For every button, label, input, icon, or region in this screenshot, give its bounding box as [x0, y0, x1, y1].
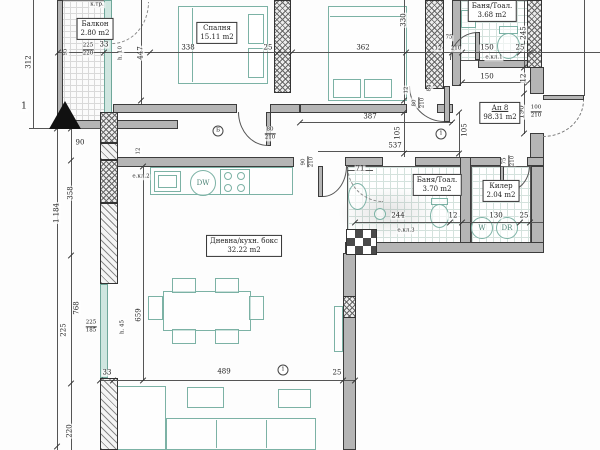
- dim: 1 184: [54, 202, 61, 224]
- entry-door-arc: [543, 100, 584, 137]
- dim-line: [57, 126, 58, 450]
- column: [527, 0, 542, 68]
- bed-fold: [330, 16, 405, 17]
- dim-line: [462, 82, 528, 83]
- wall: [460, 157, 471, 246]
- dim: 25: [263, 45, 274, 52]
- wall-hatched: [100, 143, 118, 160]
- chair: [215, 278, 239, 293]
- dim-line: [100, 380, 355, 381]
- annotation: h. 10: [118, 45, 124, 61]
- column: [343, 296, 356, 318]
- dim: 312: [26, 54, 33, 69]
- wall-hatched: [100, 203, 118, 284]
- dim-pair: 90210: [300, 157, 315, 168]
- dim: 150: [479, 74, 494, 81]
- dryer-label: DR: [502, 224, 513, 232]
- pillow: [333, 79, 361, 98]
- annotation: е.кл.1: [484, 55, 503, 61]
- sofa-cushion-line: [216, 420, 217, 448]
- axis-marker: 1: [278, 365, 289, 376]
- wall: [113, 104, 237, 113]
- room-label-balcony: Балкон2.80 m2: [77, 18, 114, 40]
- dim-pair: 100210: [531, 104, 542, 119]
- radiator: [334, 306, 343, 352]
- wall-hatched: [100, 378, 118, 450]
- washer-label: W: [478, 224, 485, 232]
- side-table: [278, 389, 311, 408]
- dim: 244: [390, 213, 405, 220]
- dishwasher-label: DW: [197, 179, 210, 187]
- dim: 12: [404, 86, 410, 95]
- dim-pair: 80210: [265, 126, 276, 141]
- dim-pair: 225220: [83, 42, 94, 57]
- room-label-bedroom: Спалня15.11 m2: [196, 22, 237, 44]
- dim: 105: [395, 125, 402, 140]
- dim: 489: [216, 369, 231, 376]
- dim: 362: [355, 45, 370, 52]
- wall: [530, 67, 544, 94]
- dim: 90: [75, 140, 86, 147]
- annotation: е.кл.2: [131, 174, 150, 180]
- dim: 12: [521, 73, 528, 84]
- dim: 25: [332, 370, 343, 377]
- dim: 225: [61, 322, 68, 337]
- dim: 358: [68, 185, 75, 200]
- wall: [415, 157, 461, 166]
- axis-marker: Б: [213, 126, 224, 137]
- dim: 768: [74, 300, 81, 315]
- wall: [343, 253, 356, 450]
- burner: [237, 172, 245, 180]
- dim: 71: [355, 166, 366, 173]
- burner: [224, 184, 232, 192]
- shaft: [346, 229, 377, 255]
- dim: 12: [136, 147, 142, 156]
- dim: 338: [180, 45, 195, 52]
- sofa-chaise: [116, 386, 166, 450]
- column: [100, 160, 118, 203]
- dim-line: [143, 166, 144, 380]
- boiler: [374, 208, 386, 220]
- sofa: [166, 418, 316, 450]
- toilet-tank: [499, 26, 518, 34]
- dim-pair: 80210: [411, 98, 426, 109]
- toilet-tank: [431, 198, 448, 205]
- column: [274, 0, 291, 93]
- dim-line: [300, 122, 453, 123]
- balcony-door-arc: [112, 2, 149, 44]
- wall: [478, 60, 528, 68]
- room-label-bath-top: Баня/Тоал.3.68 m2: [468, 0, 517, 22]
- wall: [113, 157, 294, 167]
- pillow: [364, 79, 392, 98]
- dim-pair: 75210: [501, 156, 516, 167]
- section-number: 1: [20, 103, 28, 112]
- dim: 387: [362, 114, 377, 121]
- dim: 33: [102, 370, 113, 377]
- dim: 210: [450, 46, 463, 52]
- dim: 150: [479, 45, 494, 52]
- dim-line: [318, 151, 460, 152]
- dim-line: [33, 0, 34, 128]
- dim: 33: [99, 42, 110, 49]
- wall: [270, 104, 300, 113]
- wall: [470, 157, 501, 166]
- dining-table: [163, 291, 251, 331]
- dim: 105: [462, 122, 469, 137]
- annotation: к.тр.: [89, 2, 105, 8]
- section-marker-icon: [49, 101, 81, 129]
- wall: [531, 166, 544, 246]
- coffee-table: [187, 387, 224, 408]
- wall: [527, 157, 544, 166]
- dim: 75: [445, 35, 454, 41]
- column: [100, 112, 118, 143]
- dim: 84: [427, 84, 433, 93]
- dim: 330: [401, 12, 408, 27]
- annotation: е.кл.3: [396, 228, 415, 234]
- dim-pair: 225185: [86, 319, 97, 334]
- annotation: h. 45: [120, 319, 126, 335]
- floor-plan: DW W DR: [0, 0, 600, 450]
- room-label-apartment: Ап 898.31 m2: [479, 102, 520, 124]
- pillow: [248, 14, 264, 44]
- dim: 447: [138, 45, 145, 60]
- door-arc: [238, 112, 268, 146]
- dim: 25: [519, 213, 530, 220]
- kitchen-sink-basin: [158, 175, 177, 188]
- chair: [215, 329, 239, 344]
- wall: [300, 104, 407, 113]
- sofa-cushion-line: [266, 420, 267, 448]
- room-label-bath-mid: Баня/Тоал.3.70 m2: [413, 174, 462, 196]
- burner: [237, 184, 245, 192]
- dim: 537: [387, 143, 402, 150]
- dim: 12: [434, 46, 443, 52]
- living-window: [100, 284, 108, 378]
- door-leaf: [444, 86, 450, 122]
- dim: 659: [136, 307, 143, 322]
- outer-line: [584, 0, 585, 96]
- burner: [224, 172, 232, 180]
- dim: 95: [63, 48, 69, 57]
- chair: [148, 296, 163, 320]
- room-label-closet: Килер2.04 m2: [483, 180, 520, 202]
- chair: [249, 296, 264, 320]
- dim: 25: [515, 45, 526, 52]
- dim-line: [71, 126, 72, 450]
- chair: [172, 278, 196, 293]
- chair: [172, 329, 196, 344]
- dim: 12: [448, 213, 459, 220]
- dim: 245: [521, 25, 528, 40]
- axis-marker: 1: [436, 129, 447, 140]
- dim: 130: [488, 213, 503, 220]
- room-label-living: Дневна/кухн. бокс32.22 m2: [206, 235, 282, 257]
- dim: 220: [67, 423, 74, 438]
